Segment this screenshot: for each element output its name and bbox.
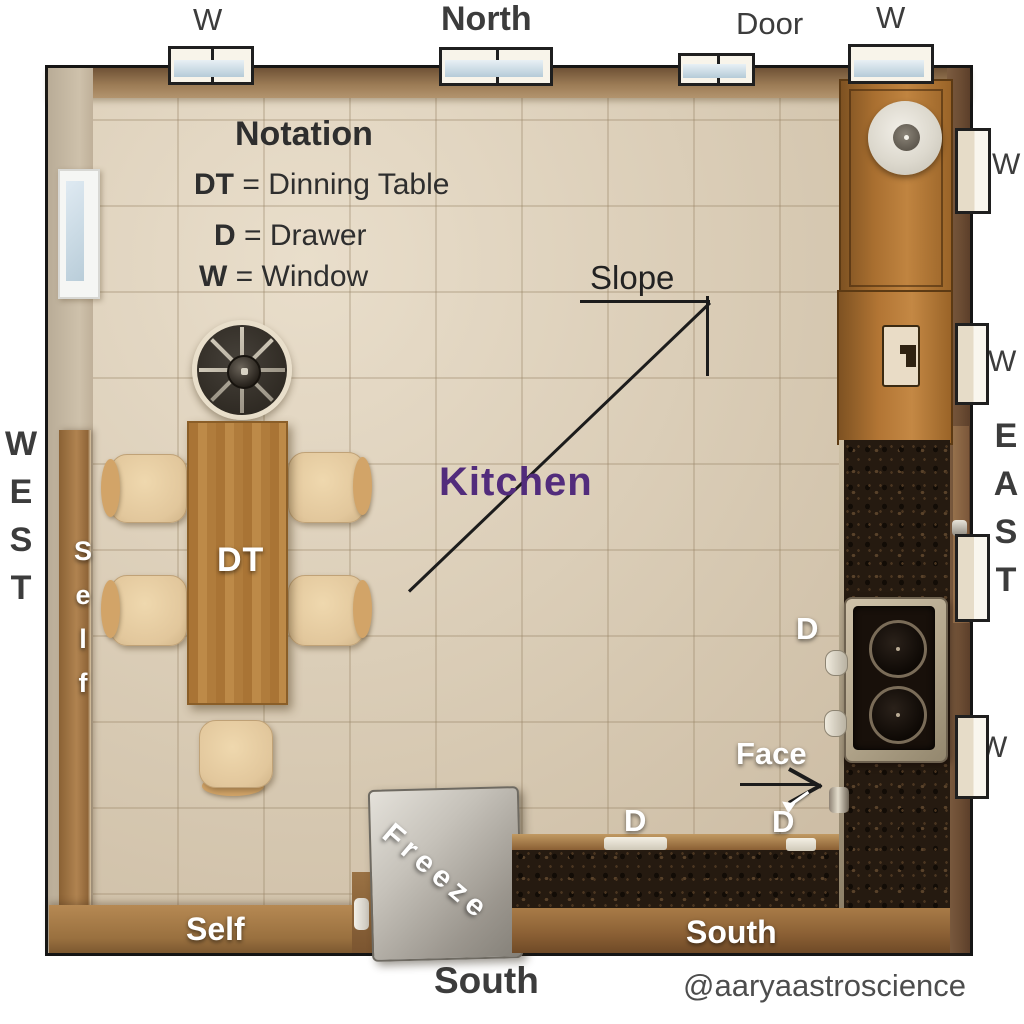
east-window-4	[955, 715, 989, 799]
east-letter: S	[986, 508, 1024, 556]
drawer-label: D	[796, 611, 818, 647]
fan-hub	[227, 355, 261, 389]
west-wall-window	[58, 169, 100, 299]
slope-label: Slope	[590, 259, 674, 297]
legend-key: W	[199, 260, 227, 293]
west-letter: W	[1, 420, 41, 468]
legend-value: = Window	[227, 260, 368, 293]
window-label-top-right: W	[876, 0, 905, 36]
ceiling-fan	[192, 320, 292, 420]
window-glass	[66, 181, 84, 281]
cutting-board	[882, 325, 920, 387]
burner	[869, 686, 927, 744]
chair-backrest	[353, 457, 372, 515]
left-shelf-label: Self	[60, 536, 92, 712]
east-letter: E	[986, 412, 1024, 460]
burner-center	[896, 713, 900, 717]
burner-center	[896, 647, 900, 651]
compass-east-label: E A S T	[986, 412, 1024, 604]
counter-cabinet	[837, 290, 953, 445]
window-label-top-left: W	[193, 2, 222, 38]
east-letter: A	[986, 460, 1024, 508]
drawer-label: D	[772, 804, 794, 840]
floor-plan-image: W North Door W W E S T E A S T W W W Sou…	[0, 0, 1024, 1024]
east-window-2	[955, 323, 989, 405]
window-label-right-2: W	[988, 345, 1016, 379]
plate-center	[893, 124, 920, 151]
slope-marker-horizontal	[580, 300, 710, 303]
kitchen-floor-plan: Notation DT = Dinning Table D = Drawer W…	[45, 65, 973, 956]
legend-item-dining-table: DT = Dinning Table	[194, 168, 449, 202]
door-glass	[683, 64, 746, 78]
window-glass	[854, 60, 924, 77]
dining-table: DT	[187, 421, 288, 705]
plate-dot	[904, 135, 909, 140]
dining-chair	[110, 454, 187, 523]
compass-north-label: North	[441, 0, 532, 39]
stove	[844, 597, 948, 763]
chair-backrest	[101, 459, 120, 517]
face-label: Face	[736, 736, 807, 772]
stove-top	[853, 606, 935, 750]
east-window-3	[955, 534, 990, 622]
drawer-handle	[825, 650, 848, 676]
corner-knob	[829, 787, 849, 813]
dining-chair	[199, 720, 273, 788]
kitchen-label: Kitchen	[439, 460, 593, 505]
window-glass	[174, 60, 244, 77]
legend-value: = Drawer	[236, 219, 367, 252]
chair-backrest	[353, 580, 372, 638]
tall-cabinet	[839, 79, 953, 297]
south-counter-label: South	[686, 914, 777, 951]
freezer-label: Freeze	[375, 817, 511, 940]
west-letter: E	[1, 468, 41, 516]
window-label-right-1: W	[992, 148, 1020, 182]
compass-west-label: W E S T	[1, 420, 41, 612]
drawer-handle	[824, 710, 847, 737]
bottom-shelf-label: Self	[186, 911, 245, 948]
legend-item-drawer: D = Drawer	[214, 219, 367, 253]
legend-title: Notation	[235, 115, 373, 154]
shelf-label-text: Self	[60, 536, 106, 712]
east-letter: T	[986, 556, 1024, 604]
legend-item-window: W = Window	[199, 260, 368, 294]
drawer-label: D	[624, 803, 646, 839]
watermark: @aaryaastroscience	[683, 968, 966, 1004]
east-window-1	[955, 128, 991, 214]
door-label: Door	[736, 6, 803, 42]
cabinet-handle	[354, 898, 369, 930]
slope-direction-line	[408, 302, 711, 593]
west-letter: T	[1, 564, 41, 612]
face-arrow-line	[740, 783, 818, 786]
dining-table-label: DT	[217, 541, 264, 580]
burner	[869, 620, 927, 678]
freezer: Freeze	[368, 786, 523, 962]
plate	[868, 101, 942, 175]
dining-chair	[110, 575, 187, 646]
west-letter: S	[1, 516, 41, 564]
fan-hub-highlight	[241, 368, 248, 375]
board-notch	[906, 345, 916, 367]
window-glass	[445, 60, 543, 77]
legend-value: = Dinning Table	[234, 168, 449, 201]
legend-key: D	[214, 219, 236, 252]
compass-south-label: South	[434, 960, 539, 1002]
legend-key: DT	[194, 168, 234, 201]
